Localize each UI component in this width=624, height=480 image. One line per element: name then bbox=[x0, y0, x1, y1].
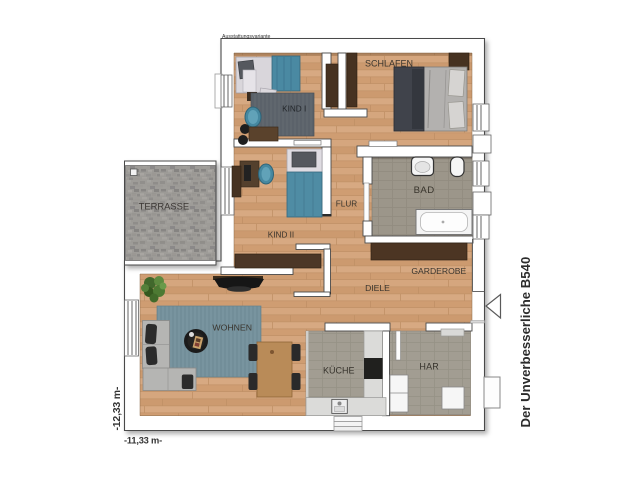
svg-text:-11,33 m-: -11,33 m- bbox=[124, 436, 162, 446]
svg-text:KIND II: KIND II bbox=[268, 231, 294, 240]
svg-text:SCHLAFEN: SCHLAFEN bbox=[365, 59, 413, 69]
svg-text:WOHNEN: WOHNEN bbox=[212, 322, 252, 332]
svg-text:TERRASSE: TERRASSE bbox=[139, 200, 190, 211]
svg-text:KÜCHE: KÜCHE bbox=[323, 366, 355, 376]
svg-text:Der Unverbesserliche B540: Der Unverbesserliche B540 bbox=[518, 257, 533, 428]
svg-text:BAD: BAD bbox=[414, 185, 435, 196]
svg-text:GARDEROBE: GARDEROBE bbox=[411, 266, 466, 276]
svg-text:-12,33 m-: -12,33 m- bbox=[111, 386, 123, 430]
svg-text:HAR: HAR bbox=[419, 362, 439, 372]
svg-text:FLUR: FLUR bbox=[336, 200, 357, 209]
svg-text:KIND I: KIND I bbox=[282, 105, 306, 114]
svg-text:DIELE: DIELE bbox=[365, 283, 390, 293]
svg-text:Ausstattungsvariante: Ausstattungsvariante bbox=[222, 34, 271, 40]
